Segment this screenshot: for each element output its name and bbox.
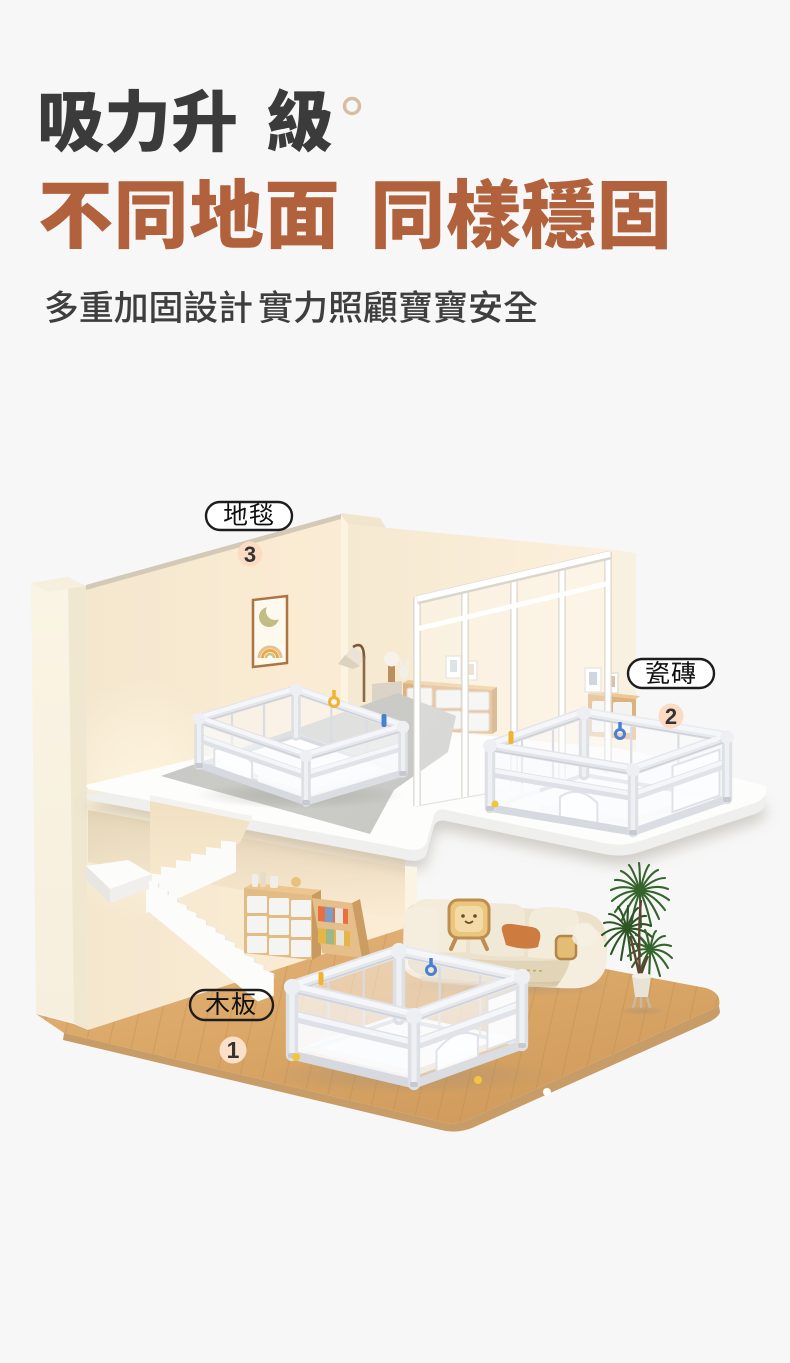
- svg-text:3: 3: [244, 542, 256, 567]
- svg-text:1: 1: [227, 1037, 240, 1063]
- svg-text:2: 2: [665, 704, 677, 729]
